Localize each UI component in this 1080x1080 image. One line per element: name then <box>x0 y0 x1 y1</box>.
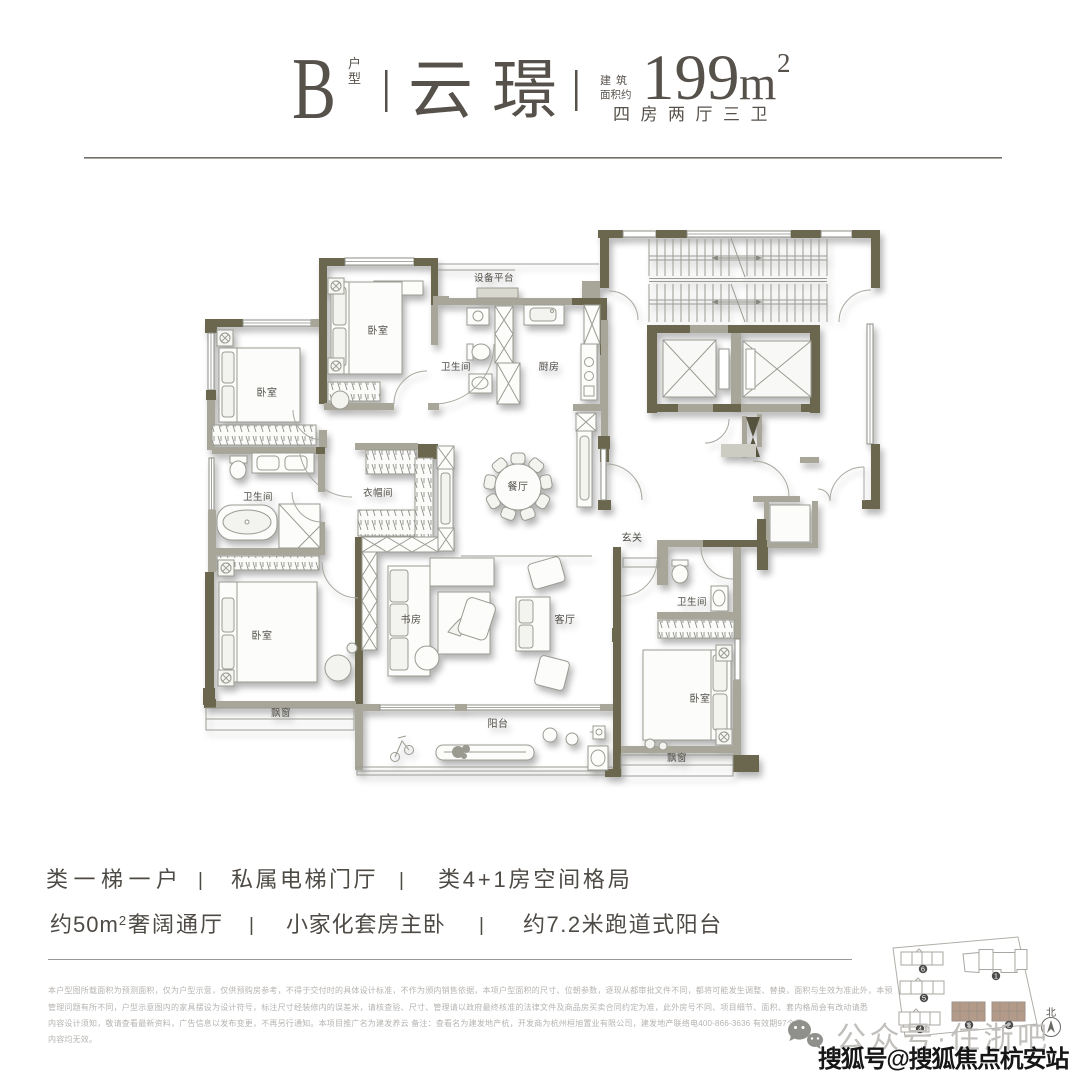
svg-text:|: | <box>479 915 484 936</box>
svg-text:卧室: 卧室 <box>690 692 711 705</box>
svg-text:建筑: 建筑 <box>600 73 632 87</box>
svg-text:云璟: 云璟 <box>408 55 576 127</box>
svg-text:设备平台: 设备平台 <box>474 272 514 284</box>
svg-text:飘窗: 飘窗 <box>667 752 687 764</box>
svg-text:1: 1 <box>994 972 998 981</box>
svg-text:6: 6 <box>921 965 925 974</box>
svg-text:私属电梯门厅: 私属电梯门厅 <box>231 867 378 892</box>
svg-text:管理问题有所不同，户型示意图内的家具摆设为设计符号，标注尺寸: 管理问题有所不同，户型示意图内的家具摆设为设计符号，标注尺寸经装修内的误差米，请… <box>48 1002 868 1012</box>
svg-text:内容均无效。: 内容均无效。 <box>48 1034 97 1044</box>
svg-text:类4+1房空间格局: 类4+1房空间格局 <box>438 867 633 892</box>
svg-text:卧室: 卧室 <box>368 324 389 337</box>
svg-text:卧室: 卧室 <box>252 629 273 642</box>
svg-text:面积约: 面积约 <box>600 88 632 101</box>
svg-text:约7.2米跑道式阳台: 约7.2米跑道式阳台 <box>523 912 723 937</box>
svg-text:卫生间: 卫生间 <box>441 361 471 373</box>
svg-text:卧室: 卧室 <box>257 386 278 399</box>
svg-text:飘窗: 飘窗 <box>271 707 291 719</box>
svg-text:卫生间: 卫生间 <box>677 596 707 608</box>
svg-text:约50m2奢阔通厅: 约50m2奢阔通厅 <box>50 912 224 937</box>
svg-text:|: | <box>399 870 404 891</box>
svg-text:199: 199 <box>642 42 740 114</box>
svg-text:客厅: 客厅 <box>555 613 576 626</box>
svg-text:户: 户 <box>348 56 362 71</box>
svg-text:四房两厅三卫: 四房两厅三卫 <box>613 105 778 124</box>
svg-text:餐厅: 餐厅 <box>508 480 529 493</box>
svg-text:小家化套房主卧: 小家化套房主卧 <box>286 912 446 937</box>
svg-text:厨房: 厨房 <box>539 360 560 373</box>
svg-text:阳台: 阳台 <box>488 717 509 730</box>
svg-text:书房: 书房 <box>401 613 422 626</box>
svg-text:本户型图所载面积为预测面积，仅为户型示意，仅供预购房参考，不: 本户型图所载面积为预测面积，仅为户型示意，仅供预购房参考，不得于交付时的具体设计… <box>48 985 893 995</box>
svg-text:玄关: 玄关 <box>622 531 643 544</box>
svg-text:|: | <box>198 870 203 891</box>
svg-text:型: 型 <box>348 71 362 86</box>
svg-text:卫生间: 卫生间 <box>243 491 273 503</box>
svg-text:内容设计须知，敬请查看最新资料，广告信息以发布变更，不再另行: 内容设计须知，敬请查看最新资料，广告信息以发布变更，不再另行通知。本项目推广名为… <box>48 1018 803 1028</box>
svg-text:北: 北 <box>1046 1007 1056 1019</box>
svg-text:类一梯一户: 类一梯一户 <box>46 867 184 892</box>
svg-text:衣帽间: 衣帽间 <box>363 487 393 499</box>
svg-text:B: B <box>292 41 336 138</box>
svg-text:2: 2 <box>777 48 791 78</box>
svg-text:|: | <box>249 915 254 936</box>
svg-text:m: m <box>739 57 776 110</box>
svg-text:搜狐号@搜狐焦点杭安站: 搜狐号@搜狐焦点杭安站 <box>818 1045 1069 1073</box>
svg-text:5: 5 <box>922 994 926 1003</box>
